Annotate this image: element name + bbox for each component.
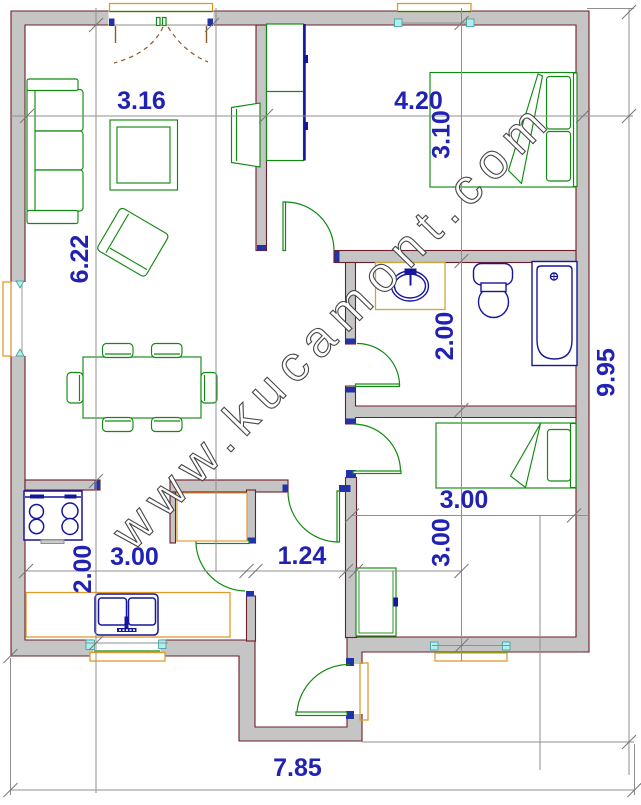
svg-text:1.24: 1.24 [278,542,327,570]
svg-text:6.22: 6.22 [66,235,94,284]
svg-text:3.00: 3.00 [440,486,489,514]
svg-text:3.16: 3.16 [117,87,166,115]
svg-text:3.00: 3.00 [428,518,456,567]
svg-text:9.95: 9.95 [593,348,621,397]
svg-text:7.85: 7.85 [273,754,322,782]
svg-text:3.10: 3.10 [428,110,456,159]
svg-text:2.00: 2.00 [431,312,459,361]
svg-text:2.00: 2.00 [69,545,97,594]
